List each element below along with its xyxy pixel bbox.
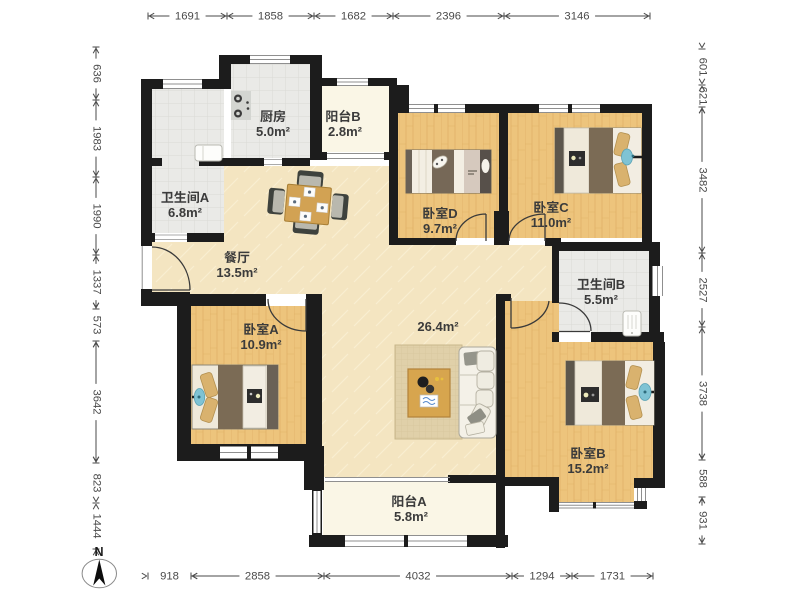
svg-text:1990: 1990 [91,203,103,228]
svg-text:3146: 3146 [564,11,589,23]
svg-text:601: 601 [697,58,709,77]
svg-text:2396: 2396 [436,11,461,23]
svg-text:N: N [94,545,103,559]
svg-text:A: A [417,494,427,509]
svg-text:2.8m²: 2.8m² [328,124,363,139]
svg-text:D: D [448,206,457,221]
svg-text:3642: 3642 [91,389,103,414]
svg-text:1858: 1858 [258,11,283,23]
svg-text:B: B [351,109,360,124]
svg-text:573: 573 [91,316,103,335]
svg-text:10.9m²: 10.9m² [240,337,282,352]
svg-text:4032: 4032 [405,571,430,583]
svg-text:11.0m²: 11.0m² [531,215,572,230]
svg-text:823: 823 [91,474,103,493]
svg-text:2858: 2858 [245,571,270,583]
svg-text:621: 621 [697,87,709,106]
svg-text:588: 588 [697,469,709,488]
svg-text:5.0m²: 5.0m² [256,124,291,139]
svg-text:A: A [269,322,279,337]
svg-text:1444: 1444 [91,513,103,538]
svg-text:1294: 1294 [529,571,554,583]
svg-text:1337: 1337 [91,269,103,294]
svg-text:C: C [559,200,569,215]
svg-text:6.8m²: 6.8m² [168,205,203,220]
svg-text:3738: 3738 [697,381,709,406]
svg-text:931: 931 [697,511,709,530]
svg-text:1983: 1983 [91,126,103,151]
svg-text:1691: 1691 [175,11,200,23]
svg-text:A: A [200,190,210,205]
svg-text:3482: 3482 [697,167,709,192]
svg-text:1731: 1731 [600,571,625,583]
svg-text:B: B [616,277,625,292]
svg-text:5.8m²: 5.8m² [394,509,429,524]
svg-text:2527: 2527 [697,277,709,302]
svg-text:15.2m²: 15.2m² [567,461,609,476]
svg-text:B: B [596,446,605,461]
svg-text:636: 636 [91,64,103,83]
svg-text:13.5m²: 13.5m² [216,265,258,280]
svg-text:5.5m²: 5.5m² [584,292,619,307]
svg-text:26.4m²: 26.4m² [417,319,459,334]
svg-text:9.7m²: 9.7m² [423,221,458,236]
svg-text:918: 918 [160,571,179,583]
svg-text:1682: 1682 [341,11,366,23]
